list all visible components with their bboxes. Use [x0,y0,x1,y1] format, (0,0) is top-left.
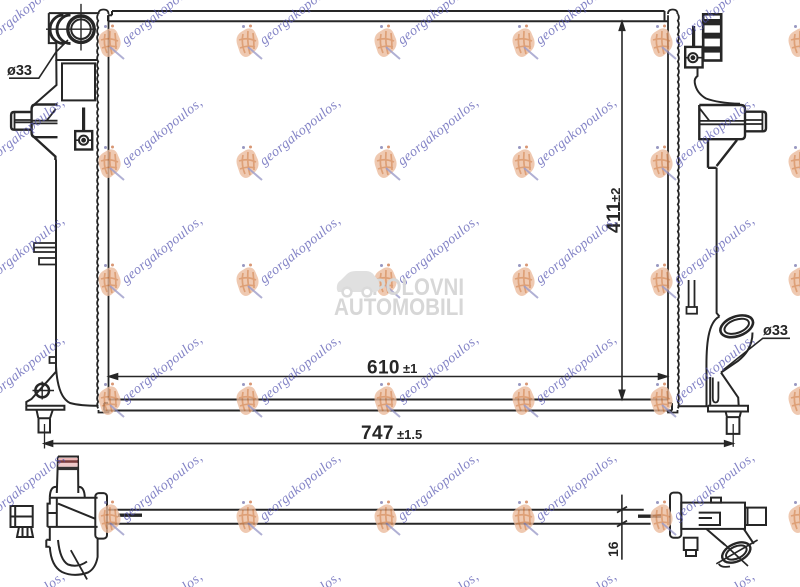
svg-text:16: 16 [605,541,621,557]
svg-text:ø33: ø33 [7,63,32,79]
svg-text:AUTOMOBILI: AUTOMOBILI [334,294,464,321]
svg-text:±2: ±2 [608,188,623,202]
svg-text:±1.5: ±1.5 [397,427,422,442]
svg-text:747: 747 [361,423,394,444]
svg-text:ø33: ø33 [763,323,788,339]
svg-text:610: 610 [367,358,400,379]
svg-text:±1: ±1 [403,361,417,376]
